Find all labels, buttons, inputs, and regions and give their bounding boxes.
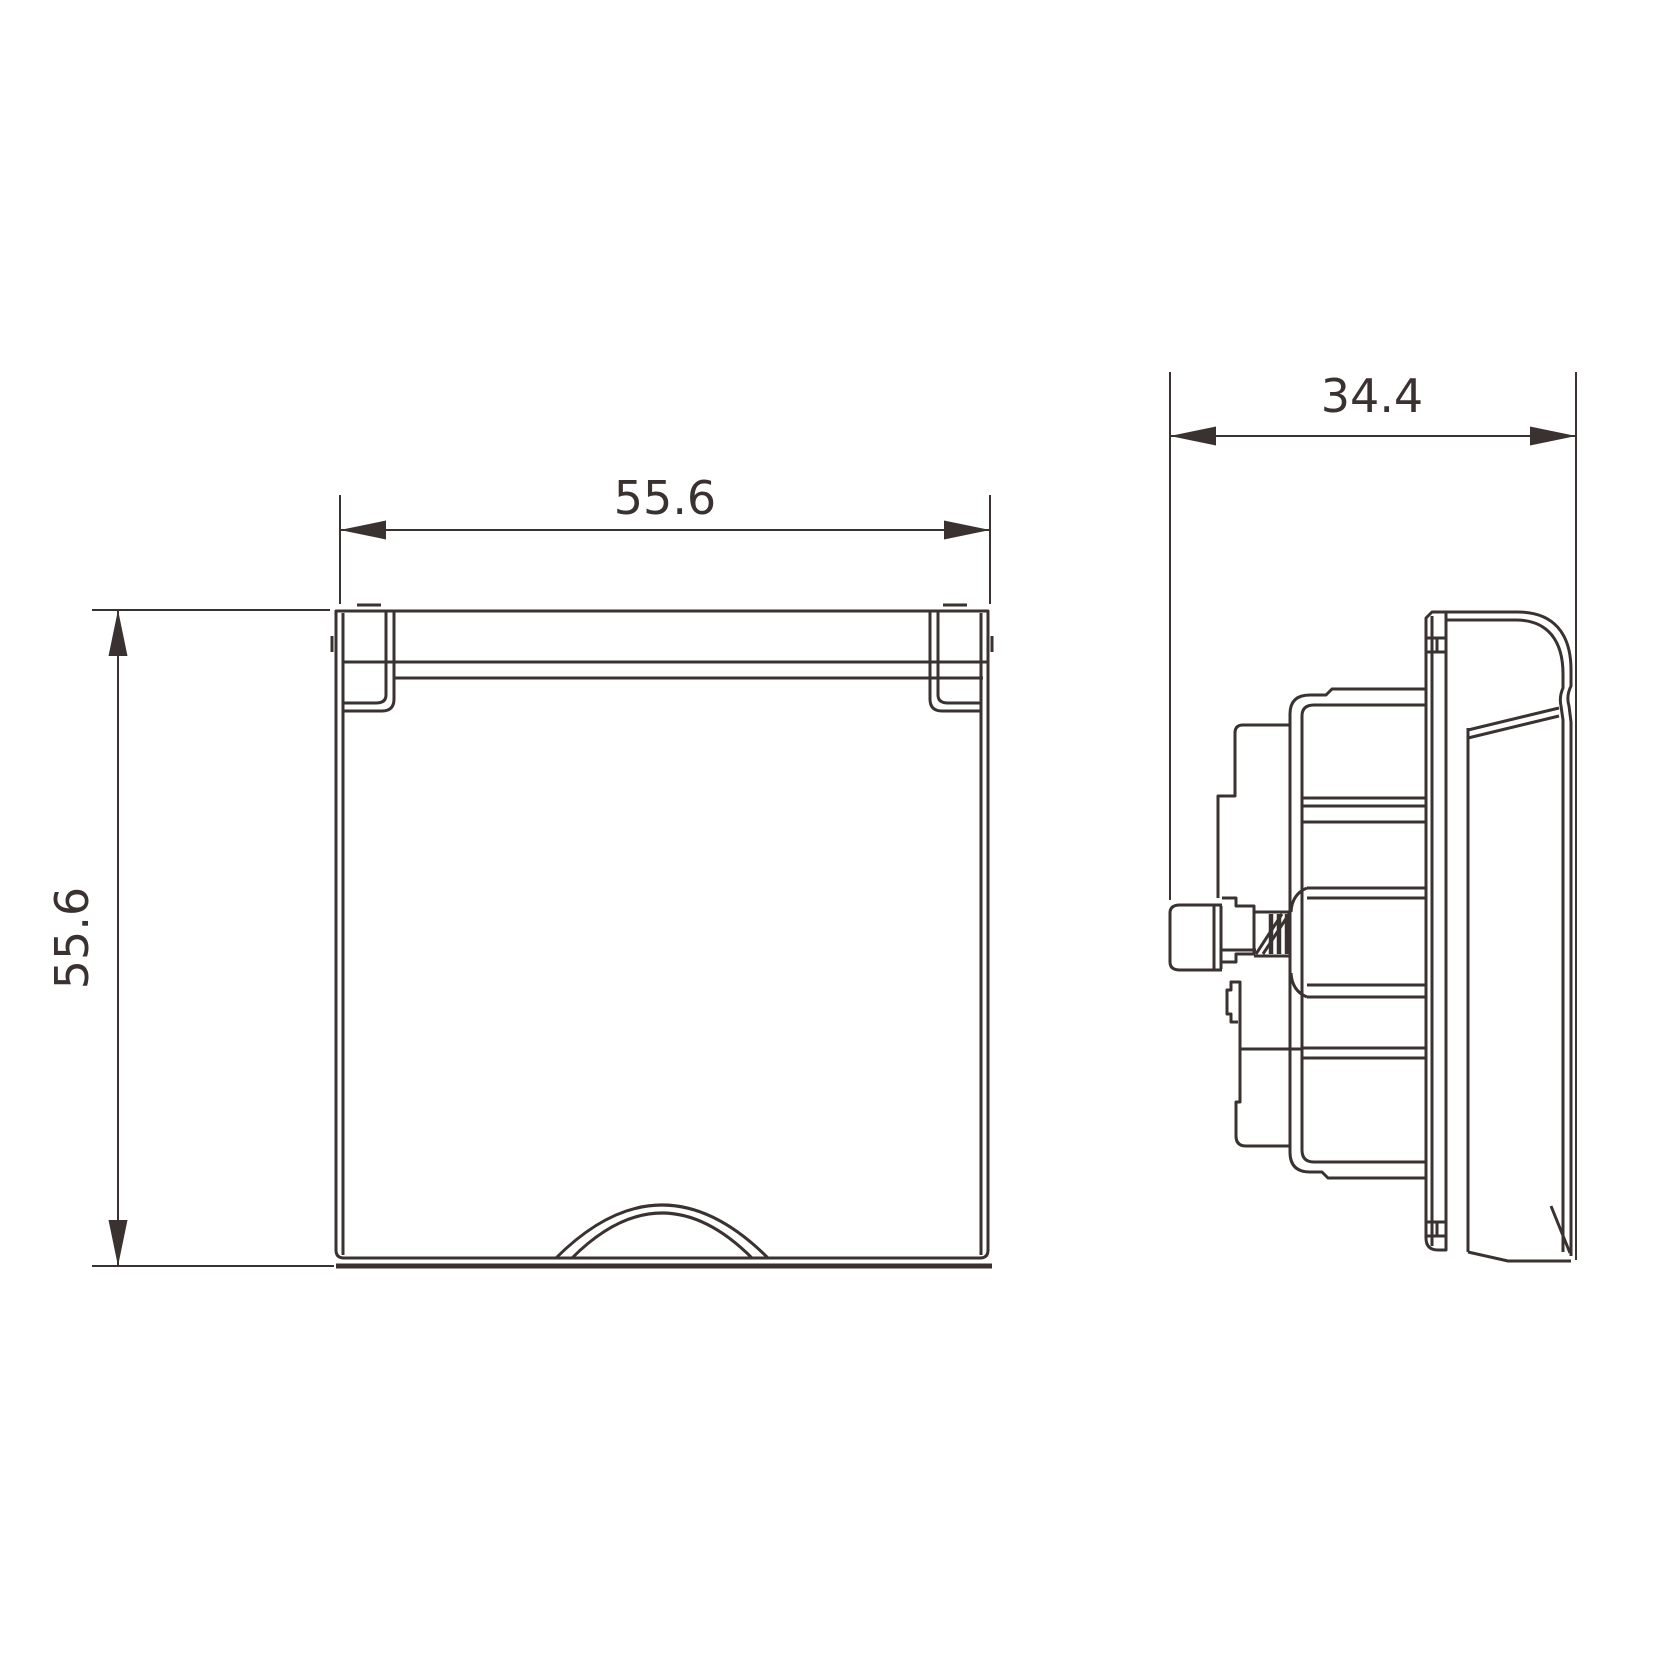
body-outline bbox=[1290, 689, 1426, 1178]
body-band-2 bbox=[1307, 888, 1426, 898]
front-view bbox=[332, 605, 992, 1266]
body-band-4 bbox=[1302, 1048, 1426, 1058]
lid-bottom-edge bbox=[1468, 1252, 1571, 1261]
arrow-front-width-right bbox=[944, 521, 990, 540]
plate-outline bbox=[1426, 612, 1446, 1250]
body-inner-line bbox=[1302, 705, 1426, 1162]
terminal-clamp-lower bbox=[1227, 982, 1240, 1049]
dim-side-depth bbox=[1170, 372, 1576, 1260]
lid-outline bbox=[336, 611, 988, 1258]
dimension-lines bbox=[92, 372, 1576, 1266]
label-front-height: 55.6 bbox=[45, 887, 99, 989]
finger-notch-inner bbox=[572, 1213, 752, 1258]
lid-profile-inner bbox=[1446, 620, 1563, 1252]
drawing-lines: 55.6 55.6 34.4 bbox=[45, 369, 1576, 1266]
arrow-front-width-left bbox=[340, 521, 386, 540]
label-front-width: 55.6 bbox=[614, 471, 716, 525]
body-step-bottom bbox=[1236, 1049, 1302, 1146]
body-band-3 bbox=[1307, 985, 1426, 997]
arrow-front-height-bottom bbox=[109, 1220, 128, 1266]
dim-front-height bbox=[92, 610, 334, 1266]
arrow-side-depth-left bbox=[1170, 427, 1216, 446]
claw-hook-upper bbox=[1291, 888, 1307, 912]
body-band-1 bbox=[1302, 798, 1426, 822]
cable-plug-cap bbox=[1214, 906, 1221, 969]
lid-bottom-chamfer bbox=[1551, 1206, 1570, 1253]
plate-clip-top bbox=[1426, 638, 1446, 652]
body-step-top bbox=[1218, 725, 1290, 898]
technical-drawing: 55.6 55.6 34.4 bbox=[0, 0, 1654, 1654]
claw-hook-lower bbox=[1291, 973, 1307, 997]
arrow-front-height-top bbox=[109, 610, 128, 656]
plate-clip-bottom bbox=[1426, 1222, 1446, 1236]
side-view bbox=[1170, 612, 1571, 1261]
terminal-clamp-upper bbox=[1222, 898, 1254, 962]
dimension-arrows bbox=[109, 427, 1577, 1267]
label-side-depth: 34.4 bbox=[1321, 369, 1423, 423]
arrow-side-depth-right bbox=[1530, 427, 1576, 446]
drawing-canvas: 55.6 55.6 34.4 bbox=[0, 0, 1654, 1654]
